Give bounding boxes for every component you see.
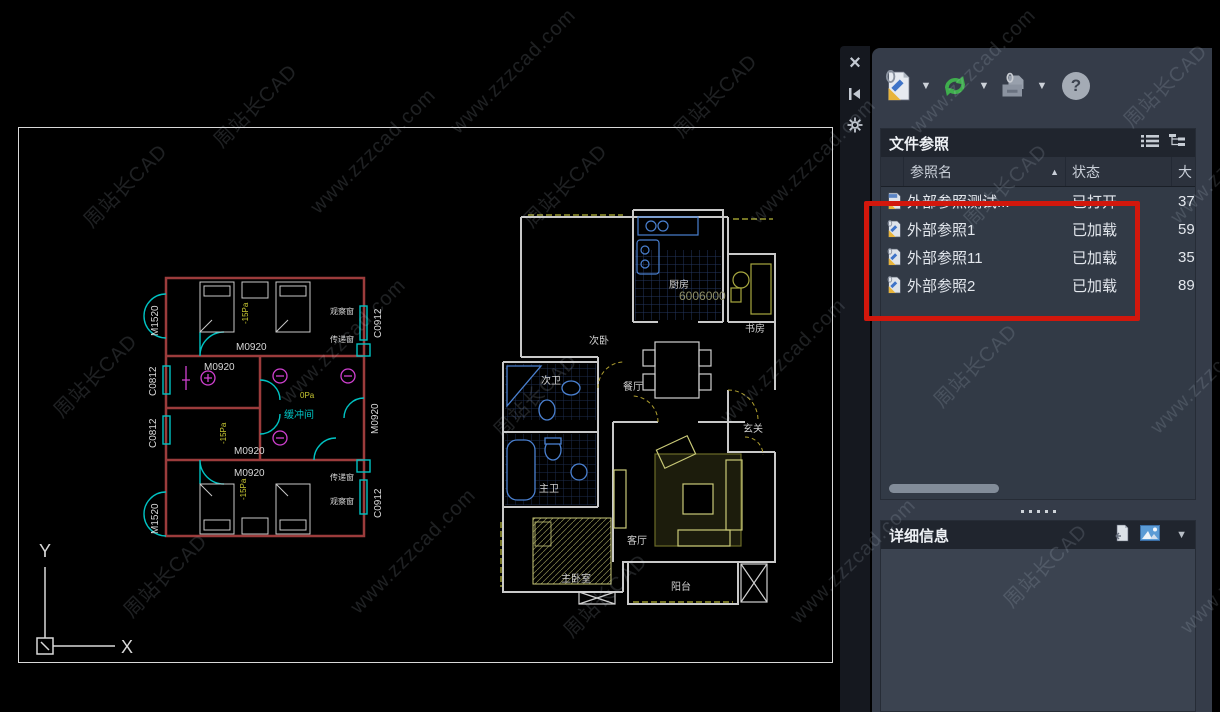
help-button[interactable]: ?: [1062, 72, 1090, 100]
panel-splitter[interactable]: [880, 503, 1196, 519]
right-floor-plan: 次卧 厨房 书房 餐厅 次卫 主卫 玄关 客厅 主卧室 阳台 6006000: [483, 192, 778, 607]
svg-text:C0812: C0812: [148, 418, 159, 448]
svg-text:次卧: 次卧: [589, 334, 609, 347]
auto-hide-icon[interactable]: [846, 85, 864, 103]
xref-row-current[interactable]: 外部参照测试... 已打开 37: [881, 187, 1195, 215]
svg-text:M0920: M0920: [204, 362, 235, 373]
svg-text:玄关: 玄关: [743, 422, 763, 435]
svg-text:C0912: C0912: [373, 308, 384, 338]
list-view-icon[interactable]: [1141, 134, 1159, 153]
xref-opened-icon: [881, 192, 905, 210]
file-reference-header: 文件参照: [881, 129, 1195, 157]
svg-text:次卫: 次卫: [541, 374, 561, 387]
svg-text:-15Pa: -15Pa: [241, 302, 250, 324]
xref-attach-icon: [881, 220, 905, 238]
tree-view-icon[interactable]: [1169, 134, 1187, 153]
path-dropdown-icon[interactable]: ▼: [1033, 80, 1051, 92]
svg-text:M0920: M0920: [234, 468, 265, 479]
attach-dwg-button[interactable]: [882, 70, 912, 102]
svg-text:传递窗: 传递窗: [330, 472, 354, 482]
svg-text:-15Pa: -15Pa: [239, 478, 248, 500]
details-panel: 详细信息: [880, 520, 1196, 712]
settings-gear-icon[interactable]: [846, 116, 864, 134]
svg-text:M0920: M0920: [236, 342, 267, 353]
details-view-icon[interactable]: [1114, 524, 1130, 547]
svg-text:主卧室: 主卧室: [561, 572, 591, 585]
svg-text:阳台: 阳台: [671, 580, 691, 593]
name-column-header[interactable]: 参照名 ▲: [903, 157, 1065, 186]
svg-text:M0920: M0920: [370, 403, 381, 434]
svg-text:传递窗: 传递窗: [330, 334, 354, 344]
svg-text:主卫: 主卫: [539, 483, 559, 495]
details-content[interactable]: [881, 549, 1195, 711]
change-path-button[interactable]: [998, 71, 1028, 101]
status-column-header[interactable]: 状态: [1065, 157, 1171, 186]
xref-attach-icon: [881, 276, 905, 294]
refresh-dropdown-icon[interactable]: ▼: [975, 80, 993, 92]
svg-text:观察窗: 观察窗: [330, 496, 354, 506]
svg-text:X: X: [121, 637, 133, 657]
icon-column-header: [881, 157, 903, 186]
svg-text:6006000: 6006000: [679, 289, 726, 303]
file-reference-title: 文件参照: [889, 133, 1141, 154]
xref-palette: ▼ ▼ ▼ ?: [872, 48, 1212, 712]
ucs-icon: Y X: [15, 535, 145, 660]
xref-list: 外部参照测试... 已打开 37 外部参照1 已加载: [881, 187, 1195, 479]
details-title: 详细信息: [889, 525, 1114, 546]
svg-text:0Pa: 0Pa: [300, 391, 315, 400]
attach-dropdown-icon[interactable]: ▼: [917, 80, 935, 92]
svg-text:缓冲间: 缓冲间: [284, 408, 314, 421]
column-header-row: 参照名 ▲ 状态 大: [881, 157, 1195, 187]
svg-text:M1520: M1520: [150, 503, 161, 534]
sort-ascending-icon: ▲: [1050, 167, 1059, 177]
preview-image-icon[interactable]: [1140, 525, 1160, 546]
collapse-chevron-icon[interactable]: ▼: [1176, 529, 1187, 541]
refresh-button[interactable]: [940, 71, 970, 101]
svg-text:餐厅: 餐厅: [623, 380, 643, 393]
xref-attach-icon: [881, 248, 905, 266]
watermark-text: www.zzzcad.com: [446, 4, 581, 139]
svg-text:-15Pa: -15Pa: [219, 422, 228, 444]
xref-row[interactable]: 外部参照1 已加载 59: [881, 215, 1195, 243]
scrollbar-thumb[interactable]: [889, 484, 999, 493]
svg-text:Y: Y: [39, 541, 51, 561]
horizontal-scrollbar: [881, 479, 1195, 499]
size-column-header[interactable]: 大: [1171, 157, 1195, 186]
svg-text:客厅: 客厅: [627, 534, 647, 547]
details-header: 详细信息: [881, 521, 1195, 549]
svg-text:书房: 书房: [745, 322, 765, 335]
xref-row[interactable]: 外部参照2 已加载 89: [881, 271, 1195, 299]
svg-text:M0920: M0920: [234, 446, 265, 457]
palette-toolbar: ▼ ▼ ▼ ?: [882, 64, 1090, 108]
svg-text:观察窗: 观察窗: [330, 306, 354, 316]
left-floor-plan: M1520 M1520 M0920 M0920 M0920 M0920 M092…: [108, 248, 390, 566]
palette-title-strip: ×: [840, 46, 870, 712]
svg-text:M1520: M1520: [150, 305, 161, 336]
xref-row[interactable]: 外部参照11 已加载 35: [881, 243, 1195, 271]
close-icon[interactable]: ×: [846, 54, 864, 72]
svg-text:C0812: C0812: [148, 366, 159, 396]
file-reference-panel: 文件参照: [880, 128, 1196, 500]
svg-text:C0912: C0912: [373, 488, 384, 518]
cad-application-window: M1520 M1520 M0920 M0920 M0920 M0920 M092…: [0, 0, 1220, 712]
